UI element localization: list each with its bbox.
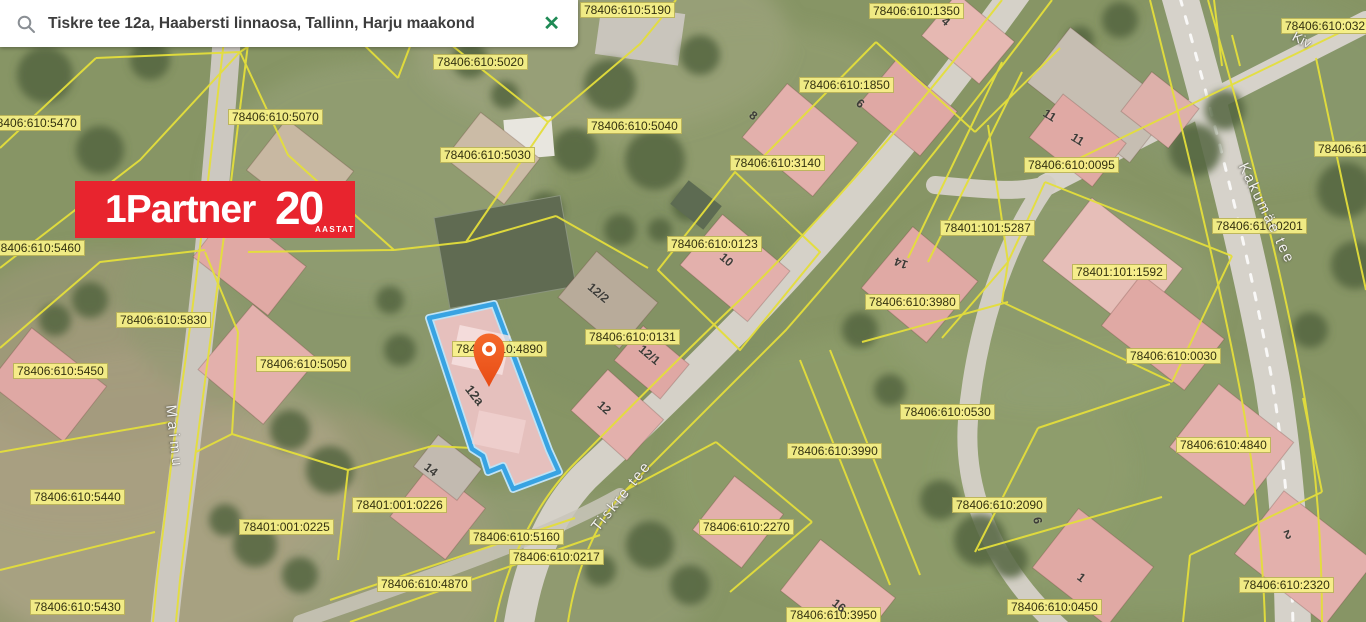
cadastral-label[interactable]: 78406:610:5450 <box>13 363 108 379</box>
cadastral-label[interactable]: 78406:610:5070 <box>228 109 323 125</box>
cadastral-label[interactable]: 78406:610:0450 <box>1007 599 1102 615</box>
cadastral-label[interactable]: 78401:001:0226 <box>352 497 447 513</box>
cadastral-label[interactable]: 78406:610:4870 <box>377 576 472 592</box>
cadastral-label[interactable]: 78406:610:2320 <box>1239 577 1334 593</box>
cadastral-label[interactable]: 78406:610:2090 <box>952 497 1047 513</box>
cadastral-label[interactable]: 78406:610:0123 <box>667 236 762 252</box>
cadastral-label[interactable]: 78406:610:5050 <box>256 356 351 372</box>
cadastral-label[interactable]: 78406:610:5030 <box>440 147 535 163</box>
cadastral-label[interactable]: 78406:610:5830 <box>116 312 211 328</box>
cadastral-label[interactable]: 78406:610:0131 <box>585 329 680 345</box>
cadastral-label[interactable]: 78406:610:3980 <box>865 294 960 310</box>
cadastral-label[interactable]: 78406:610:2270 <box>699 519 794 535</box>
location-pin[interactable] <box>467 333 511 393</box>
cadastral-label[interactable]: 78406:610:5470 <box>0 115 81 131</box>
cadastral-label[interactable]: 78406:610:3990 <box>787 443 882 459</box>
logo-brand-text: 1Partner <box>105 185 255 235</box>
search-bar[interactable]: ✕ <box>0 0 578 47</box>
cadastral-label[interactable]: 78406:610:5440 <box>30 489 125 505</box>
cadastral-label[interactable]: 78406:610:0217 <box>509 549 604 565</box>
cadastral-label[interactable]: 78406:610:0030 <box>1126 348 1221 364</box>
cadastral-label[interactable]: 78406:610:0530 <box>900 404 995 420</box>
search-input[interactable] <box>46 14 543 34</box>
clear-search-icon[interactable]: ✕ <box>543 14 560 34</box>
cadastral-label[interactable]: 78406:61 <box>1314 141 1366 157</box>
cadastral-label[interactable]: 78406:610:1350 <box>869 3 964 19</box>
cadastral-label[interactable]: 78406:610:5040 <box>587 118 682 134</box>
cadastral-label[interactable]: 78406:610:3950 <box>786 607 881 622</box>
logo-anniversary-label: AASTAT <box>315 225 355 234</box>
cadastral-label[interactable]: 78401:101:5287 <box>940 220 1035 236</box>
cadastral-label[interactable]: 78406:610:5190 <box>580 2 675 18</box>
cadastral-label[interactable]: 78406:610:5020 <box>433 54 528 70</box>
search-icon <box>16 14 36 34</box>
cadastral-label[interactable]: 78406:610:1850 <box>799 77 894 93</box>
cadastral-label[interactable]: 78406:610:5430 <box>30 599 125 615</box>
cadastral-label[interactable]: 78406:610:5160 <box>469 529 564 545</box>
cadastral-label[interactable]: 78406:610:0201 <box>1212 218 1307 234</box>
partner-logo: 1Partner 20 AASTAT <box>75 181 355 238</box>
cadastral-label[interactable]: 78406:610:032 <box>1281 18 1366 34</box>
map-viewport[interactable]: 78406:610:519078406:610:135078406:610:03… <box>0 0 1366 622</box>
cadastral-label[interactable]: 78406:610:3140 <box>730 155 825 171</box>
cadastral-label[interactable]: 78401:001:0225 <box>239 519 334 535</box>
cadastral-label[interactable]: 78406:610:5460 <box>0 240 85 256</box>
cadastral-label[interactable]: 78401:101:1592 <box>1072 264 1167 280</box>
cadastral-label[interactable]: 78406:610:0095 <box>1024 157 1119 173</box>
aerial-map <box>0 0 1366 622</box>
cadastral-label[interactable]: 78406:610:4840 <box>1176 437 1271 453</box>
